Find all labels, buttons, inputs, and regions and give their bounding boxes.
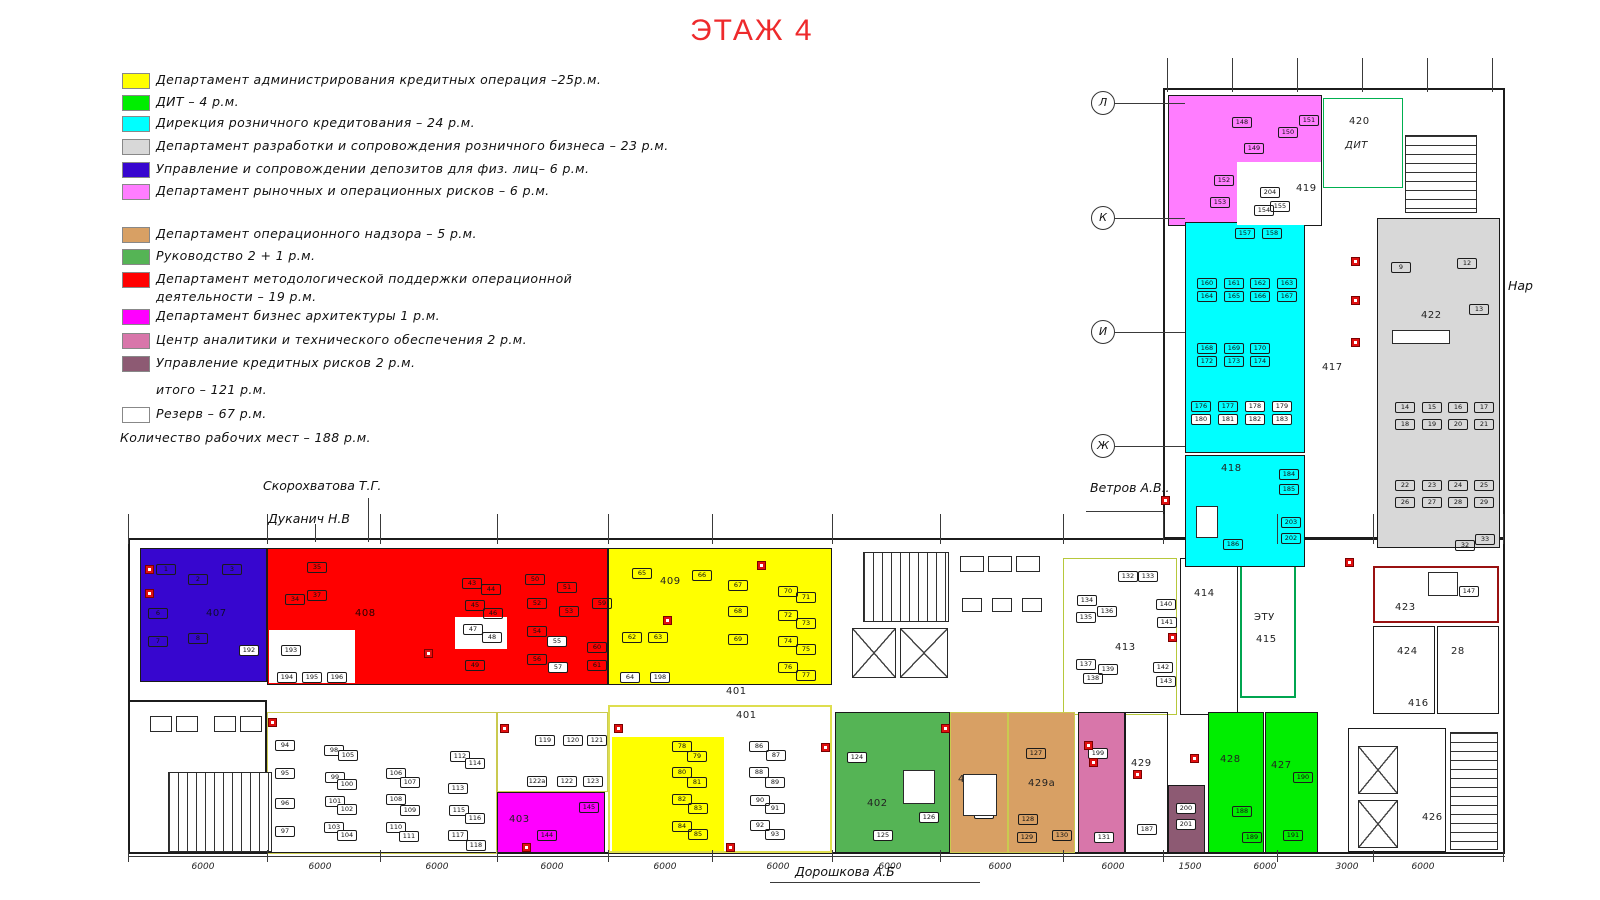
desk-60: 60	[587, 642, 607, 653]
room-label-408: 408	[355, 608, 376, 619]
room-label-407: 407	[206, 608, 227, 619]
desk-200: 200	[1176, 803, 1196, 814]
legend-label: Центр аналитики и технического обеспечен…	[156, 332, 527, 347]
desk-94: 94	[275, 740, 295, 751]
desk-3: 3	[222, 564, 242, 575]
desk-61: 61	[587, 660, 607, 671]
grid-tick	[1163, 514, 1164, 544]
desk-62: 62	[622, 632, 642, 643]
legend-swatch	[122, 356, 150, 372]
grid-tick	[1277, 514, 1278, 544]
desk-34: 34	[285, 594, 305, 605]
legend-label: Руководство 2 + 1 р.м.	[156, 248, 315, 263]
fixture	[1196, 506, 1218, 538]
desk-91: 91	[765, 803, 785, 814]
area-label-416: 416	[1408, 698, 1429, 709]
fire-extinguisher-icon	[145, 589, 154, 598]
desk-13: 13	[1469, 304, 1489, 315]
desk-15: 15	[1422, 402, 1442, 413]
desk-73: 73	[796, 618, 816, 629]
grid-tick	[380, 514, 381, 544]
dimension-label: 6000	[989, 862, 1012, 872]
fixture	[988, 556, 1012, 572]
desk-20: 20	[1448, 419, 1468, 430]
legend-swatch	[122, 407, 150, 423]
desk-143: 143	[1156, 676, 1176, 687]
fire-extinguisher-icon	[1084, 741, 1093, 750]
fixture	[1428, 572, 1458, 596]
desk-12: 12	[1457, 258, 1477, 269]
desk-56: 56	[527, 654, 547, 665]
desk-131: 131	[1094, 832, 1114, 843]
legend-label: Количество рабочих мест – 188 р.м.	[120, 430, 371, 445]
desk-69: 69	[728, 634, 748, 645]
desk-189: 189	[1242, 832, 1262, 843]
desk-23: 23	[1422, 480, 1442, 491]
legend-label: ДИТ – 4 р.м.	[156, 94, 239, 109]
desk-177: 177	[1218, 401, 1238, 412]
room-label-419: 419	[1296, 183, 1317, 194]
desk-121: 121	[587, 735, 607, 746]
desk-137: 137	[1076, 659, 1096, 670]
desk-79: 79	[687, 751, 707, 762]
fire-extinguisher-icon	[1133, 770, 1142, 779]
desk-57: 57	[548, 662, 568, 673]
desk-119: 119	[535, 735, 555, 746]
desk-147: 147	[1459, 586, 1479, 597]
legend-label: Департамент разработки и сопровождения р…	[156, 138, 669, 153]
legend-swatch	[122, 249, 150, 265]
desk-134: 134	[1077, 595, 1097, 606]
desk-76: 76	[778, 662, 798, 673]
desk-77: 77	[796, 670, 816, 681]
desk-113: 113	[448, 783, 468, 794]
desk-149: 149	[1244, 143, 1264, 154]
legend-label: Резерв – 67 р.м.	[156, 406, 267, 421]
desk-105: 105	[338, 750, 358, 761]
fixture	[240, 716, 262, 732]
fire-extinguisher-icon	[941, 724, 950, 733]
grid-tick	[832, 514, 833, 544]
desk-123: 123	[583, 776, 603, 787]
desk-139: 139	[1098, 664, 1118, 675]
desk-71: 71	[796, 592, 816, 603]
legend-swatch	[122, 272, 150, 288]
axis-Л: Л	[1091, 91, 1115, 115]
desk-204: 204	[1260, 187, 1280, 198]
floor-plan-page: ЭТАЖ 4 Департамент администрирования кре…	[0, 0, 1600, 900]
desk-194: 194	[277, 672, 297, 683]
legend-label: Управление кредитных рисков 2 р.м.	[156, 355, 415, 370]
desk-100: 100	[337, 779, 357, 790]
desk-158: 158	[1262, 228, 1282, 239]
room-label-429: 429	[1131, 758, 1152, 769]
elevator-icon	[1358, 800, 1398, 848]
fire-extinguisher-icon	[663, 616, 672, 625]
fixture	[962, 598, 982, 612]
legend-swatch	[122, 184, 150, 200]
fire-extinguisher-icon	[726, 843, 735, 852]
room-label-428: 428	[1220, 754, 1241, 765]
fixture	[903, 770, 935, 804]
desk-124: 124	[847, 752, 867, 763]
dimension-label: 6000	[426, 862, 449, 872]
desk-152: 152	[1214, 175, 1234, 186]
grid-tick	[608, 514, 609, 544]
fire-extinguisher-icon	[1161, 496, 1170, 505]
dimension-label: 3000	[1336, 862, 1359, 872]
desk-186: 186	[1223, 539, 1243, 550]
desk-114: 114	[465, 758, 485, 769]
fire-extinguisher-icon	[614, 724, 623, 733]
annotation-nar: Нар	[1508, 278, 1533, 293]
room-label-426: 426	[1422, 812, 1443, 823]
legend-label: Департамент операционного надзора – 5 р.…	[156, 226, 477, 241]
desk-109: 109	[400, 805, 420, 816]
axis-И: И	[1091, 320, 1115, 344]
annotation-skorokhvatova: Скорохватова Т.Г.	[263, 478, 381, 493]
desk-203: 203	[1281, 517, 1301, 528]
room-label-403: 403	[509, 814, 530, 825]
desk-181: 181	[1218, 414, 1238, 425]
desk-135: 135	[1076, 612, 1096, 623]
desk-107: 107	[400, 777, 420, 788]
desk-37: 37	[307, 590, 327, 601]
stairs-icon	[1450, 732, 1498, 850]
desk-190: 190	[1293, 772, 1313, 783]
desk-102: 102	[337, 804, 357, 815]
fixture	[1016, 556, 1040, 572]
desk-111: 111	[399, 831, 419, 842]
desk-72: 72	[778, 610, 798, 621]
desk-74: 74	[778, 636, 798, 647]
fire-extinguisher-icon	[1089, 758, 1098, 767]
room-label-414: 414	[1194, 588, 1215, 599]
desk-35: 35	[307, 562, 327, 573]
fire-extinguisher-icon	[1351, 257, 1360, 266]
desk-47: 47	[463, 624, 483, 635]
desk-132: 132	[1118, 571, 1138, 582]
desk-193: 193	[281, 645, 301, 656]
desk-172: 172	[1197, 356, 1217, 367]
fixture	[150, 716, 172, 732]
fire-extinguisher-icon	[500, 724, 509, 733]
desk-83: 83	[688, 803, 708, 814]
fixture	[1022, 598, 1042, 612]
desk-44: 44	[481, 584, 501, 595]
desk-180: 180	[1191, 414, 1211, 425]
desk-65: 65	[632, 568, 652, 579]
desk-14: 14	[1395, 402, 1415, 413]
desk-24: 24	[1448, 480, 1468, 491]
legend-swatch	[122, 227, 150, 243]
desk-122: 122	[557, 776, 577, 787]
legend-label: Департамент методологической поддержки о…	[156, 271, 572, 286]
desk-75: 75	[796, 644, 816, 655]
desk-201: 201	[1176, 819, 1196, 830]
desk-129: 129	[1017, 832, 1037, 843]
desk-174: 174	[1250, 356, 1270, 367]
desk-125: 125	[873, 830, 893, 841]
area-label-401: 401	[726, 686, 747, 697]
fixture	[1392, 330, 1450, 344]
fire-extinguisher-icon	[821, 743, 830, 752]
elevator-icon	[1358, 746, 1398, 794]
desk-87: 87	[766, 750, 786, 761]
desk-165: 165	[1224, 291, 1244, 302]
elevator-icon	[900, 628, 948, 678]
desk-141: 141	[1157, 617, 1177, 628]
room-label-415: ЭТУ	[1254, 612, 1275, 623]
leader-line	[1086, 511, 1164, 512]
desk-184: 184	[1279, 469, 1299, 480]
fixture	[214, 716, 236, 732]
axis-leader-line	[1115, 446, 1185, 447]
fire-extinguisher-icon	[145, 565, 154, 574]
desk-63: 63	[648, 632, 668, 643]
desk-53: 53	[559, 606, 579, 617]
desk-21: 21	[1474, 419, 1494, 430]
desk-29: 29	[1474, 497, 1494, 508]
room-label-402: 402	[867, 798, 888, 809]
room-sublabel-415: 415	[1256, 634, 1277, 645]
room-label-420: 420	[1349, 116, 1370, 127]
desk-170: 170	[1250, 343, 1270, 354]
desk-43: 43	[462, 578, 482, 589]
room-label-425: 28	[1451, 646, 1465, 657]
leader-line	[315, 524, 316, 542]
desk-22: 22	[1395, 480, 1415, 491]
desk-25: 25	[1474, 480, 1494, 491]
annotation-dukanich: Дуканич Н.В	[268, 511, 350, 526]
fire-extinguisher-icon	[522, 843, 531, 852]
desk-144: 144	[537, 830, 557, 841]
axis-К: К	[1091, 206, 1115, 230]
elevator-icon	[852, 628, 896, 678]
stairs-icon	[168, 772, 272, 852]
grid-tick	[1232, 58, 1233, 92]
axis-leader-line	[1115, 103, 1185, 104]
desk-178: 178	[1245, 401, 1265, 412]
desk-95: 95	[275, 768, 295, 779]
room-label-413: 413	[1115, 642, 1136, 653]
fixture	[176, 716, 198, 732]
desk-16: 16	[1448, 402, 1468, 413]
desk-153: 153	[1210, 197, 1230, 208]
dimension-label: 6000	[654, 862, 677, 872]
dimension-label: 6000	[1102, 862, 1125, 872]
desk-136: 136	[1097, 606, 1117, 617]
dimension-label: 1500	[1179, 862, 1202, 872]
grid-tick	[1492, 58, 1493, 92]
legend-label: Управление и сопровождении депозитов для…	[156, 161, 589, 176]
desk-9: 9	[1391, 262, 1411, 273]
desk-117: 117	[448, 830, 468, 841]
desk-167: 167	[1277, 291, 1297, 302]
desk-89: 89	[765, 777, 785, 788]
desk-192: 192	[239, 645, 259, 656]
desk-108: 108	[386, 794, 406, 805]
desk-118: 118	[466, 840, 486, 851]
axis-leader-line	[1115, 332, 1185, 333]
desk-126: 126	[919, 812, 939, 823]
desk-27: 27	[1422, 497, 1442, 508]
desk-169: 169	[1224, 343, 1244, 354]
legend-label-line2: деятельности – 19 р.м.	[156, 289, 316, 304]
desk-116: 116	[465, 813, 485, 824]
stairs-icon	[1405, 135, 1477, 213]
grid-tick	[1297, 58, 1298, 92]
fire-extinguisher-icon	[1351, 338, 1360, 347]
dimension-label: 6000	[767, 862, 790, 872]
room-label-409: 409	[660, 576, 681, 587]
annotation-vetrov: Ветров А.В..	[1090, 480, 1170, 495]
desk-55: 55	[547, 636, 567, 647]
desk-162: 162	[1250, 278, 1270, 289]
desk-2: 2	[188, 574, 208, 585]
fixture	[963, 774, 997, 816]
room-sublabel-420: ДИТ	[1345, 140, 1368, 151]
dimension-label: 6000	[1254, 862, 1277, 872]
legend-swatch	[122, 333, 150, 349]
desk-166: 166	[1250, 291, 1270, 302]
desk-26: 26	[1395, 497, 1415, 508]
desk-155: 155	[1270, 201, 1290, 212]
desk-127: 127	[1026, 748, 1046, 759]
legend-swatch	[122, 116, 150, 132]
grid-tick	[1373, 514, 1374, 544]
desk-67: 67	[728, 580, 748, 591]
desk-140: 140	[1156, 599, 1176, 610]
desk-151: 151	[1299, 115, 1319, 126]
room-label-429a: 429а	[1028, 778, 1055, 789]
desk-176: 176	[1191, 401, 1211, 412]
room-415	[1240, 560, 1296, 698]
room-label-424: 424	[1397, 646, 1418, 657]
room-label-418: 418	[1221, 463, 1242, 474]
desk-28: 28	[1448, 497, 1468, 508]
desk-160: 160	[1197, 278, 1217, 289]
legend-swatch	[122, 309, 150, 325]
desk-45: 45	[465, 600, 485, 611]
desk-122а: 122а	[527, 776, 547, 787]
legend-swatch	[122, 162, 150, 178]
desk-97: 97	[275, 826, 295, 837]
fire-extinguisher-icon	[424, 649, 433, 658]
desk-168: 168	[1197, 343, 1217, 354]
desk-120: 120	[563, 735, 583, 746]
desk-85: 85	[688, 829, 708, 840]
fire-extinguisher-icon	[757, 561, 766, 570]
fire-extinguisher-icon	[1168, 633, 1177, 642]
desk-17: 17	[1474, 402, 1494, 413]
desk-1: 1	[156, 564, 176, 575]
desk-64: 64	[620, 672, 640, 683]
desk-32: 32	[1455, 540, 1475, 551]
legend-swatch	[122, 73, 150, 89]
fire-extinguisher-icon	[1190, 754, 1199, 763]
room-414	[1180, 558, 1238, 715]
desk-142: 142	[1153, 662, 1173, 673]
desk-68: 68	[728, 606, 748, 617]
grid-tick	[940, 514, 941, 544]
desk-182: 182	[1245, 414, 1265, 425]
desk-48: 48	[482, 632, 502, 643]
grid-tick	[1063, 514, 1064, 544]
desk-46: 46	[483, 608, 503, 619]
room-label-427: 427	[1271, 760, 1292, 771]
leader-line	[770, 882, 980, 883]
room-label-422: 422	[1421, 310, 1442, 321]
page-title: ЭТАЖ 4	[690, 14, 814, 48]
desk-164: 164	[1197, 291, 1217, 302]
dimension-label: 6000	[192, 862, 215, 872]
desk-161: 161	[1224, 278, 1244, 289]
dimension-label: 6000	[309, 862, 332, 872]
desk-7: 7	[148, 636, 168, 647]
desk-49: 49	[465, 660, 485, 671]
grid-tick	[1427, 58, 1428, 92]
desk-163: 163	[1277, 278, 1297, 289]
desk-145: 145	[579, 802, 599, 813]
desk-8: 8	[188, 633, 208, 644]
axis-Ж: Ж	[1091, 434, 1115, 458]
desk-70: 70	[778, 586, 798, 597]
desk-183: 183	[1272, 414, 1292, 425]
desk-19: 19	[1422, 419, 1442, 430]
room-425	[1437, 626, 1499, 714]
desk-54: 54	[527, 626, 547, 637]
room-label-423: 423	[1395, 602, 1416, 613]
leader-line	[368, 498, 369, 542]
desk-50: 50	[525, 574, 545, 585]
grid-tick	[128, 514, 129, 544]
fire-extinguisher-icon	[1351, 296, 1360, 305]
room-label-401: 401	[736, 710, 757, 721]
fixture	[992, 598, 1012, 612]
desk-81: 81	[687, 777, 707, 788]
fixture	[960, 556, 984, 572]
grid-tick	[712, 514, 713, 544]
desk-33: 33	[1475, 534, 1495, 545]
desk-185: 185	[1279, 484, 1299, 495]
leader-line	[128, 856, 1505, 857]
desk-104: 104	[337, 830, 357, 841]
desk-150: 150	[1278, 127, 1298, 138]
desk-157: 157	[1235, 228, 1255, 239]
desk-195: 195	[302, 672, 322, 683]
grid-tick	[1167, 58, 1168, 92]
desk-128: 128	[1018, 814, 1038, 825]
desk-52: 52	[527, 598, 547, 609]
desk-18: 18	[1395, 419, 1415, 430]
area-label-417: 417	[1322, 362, 1343, 373]
desk-188: 188	[1232, 806, 1252, 817]
grid-tick	[497, 514, 498, 544]
desk-179: 179	[1272, 401, 1292, 412]
dimension-label: 6000	[541, 862, 564, 872]
desk-93: 93	[765, 829, 785, 840]
legend-label: Дирекция розничного кредитования – 24 р.…	[156, 115, 475, 130]
legend-label: Департамент бизнес архитектуры 1 р.м.	[156, 308, 440, 323]
desk-187: 187	[1137, 824, 1157, 835]
grid-tick	[1503, 514, 1504, 544]
legend-swatch	[122, 95, 150, 111]
desk-51: 51	[557, 582, 577, 593]
desk-198: 198	[650, 672, 670, 683]
desk-6: 6	[148, 608, 168, 619]
desk-202: 202	[1281, 533, 1301, 544]
